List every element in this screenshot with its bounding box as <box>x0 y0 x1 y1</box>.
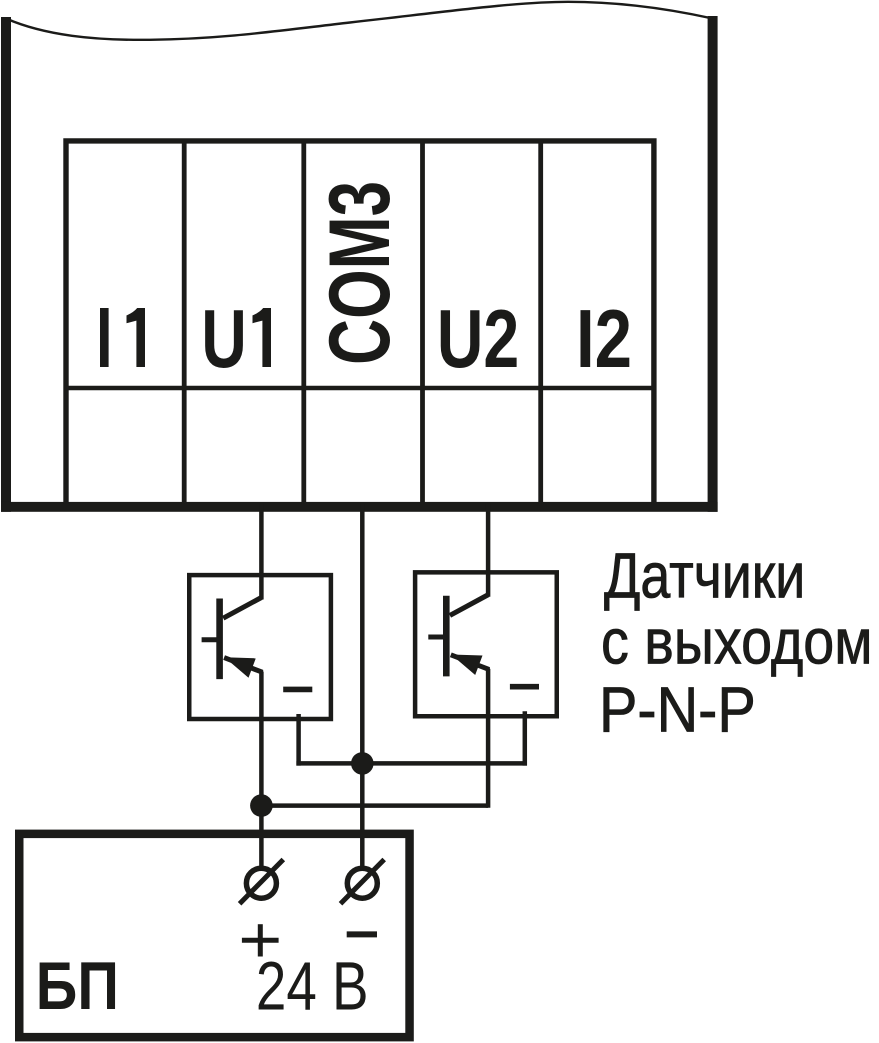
svg-text:COM3: COM3 <box>313 181 408 365</box>
svg-text:I2: I2 <box>576 293 632 385</box>
svg-text:U: U <box>201 291 246 385</box>
svg-text:24 В: 24 В <box>256 948 369 1024</box>
svg-text:Датчики: Датчики <box>604 539 805 612</box>
svg-text:U2: U2 <box>437 292 519 385</box>
svg-text:БП: БП <box>36 949 119 1024</box>
svg-text:P-N-P: P-N-P <box>599 674 756 745</box>
svg-text:с выходом: с выходом <box>601 606 873 677</box>
